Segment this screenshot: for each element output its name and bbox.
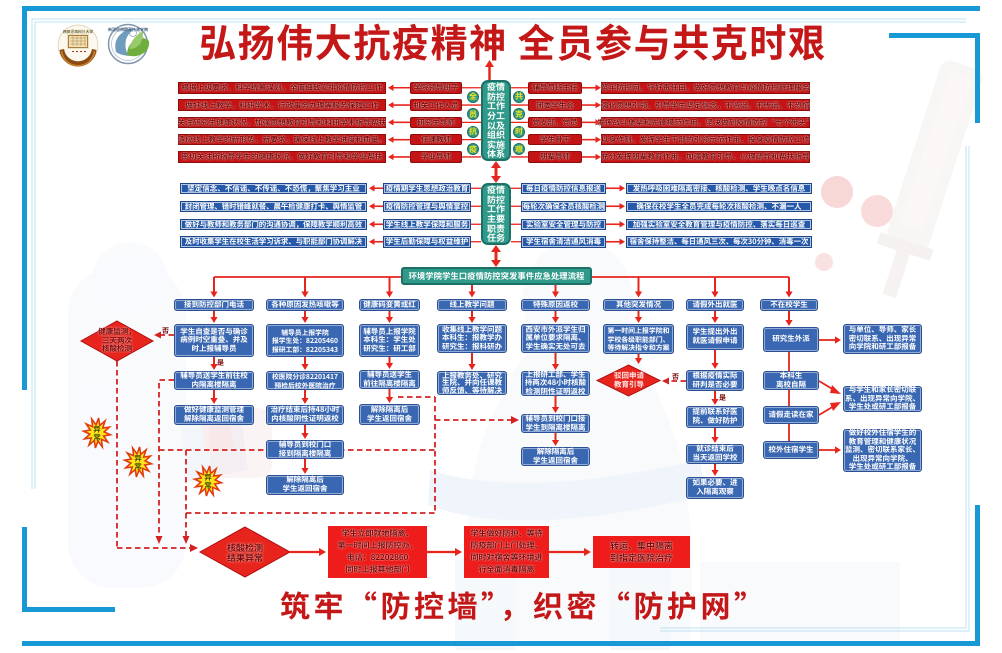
svg-text:常: 常 xyxy=(204,480,212,491)
svg-text:西安建筑科技大学: 西安建筑科技大学 xyxy=(63,29,94,35)
svg-text:常: 常 xyxy=(93,432,101,443)
svg-text:常: 常 xyxy=(134,461,142,472)
svg-text:新疆应用职业技术学院: 新疆应用职业技术学院 xyxy=(108,26,148,33)
